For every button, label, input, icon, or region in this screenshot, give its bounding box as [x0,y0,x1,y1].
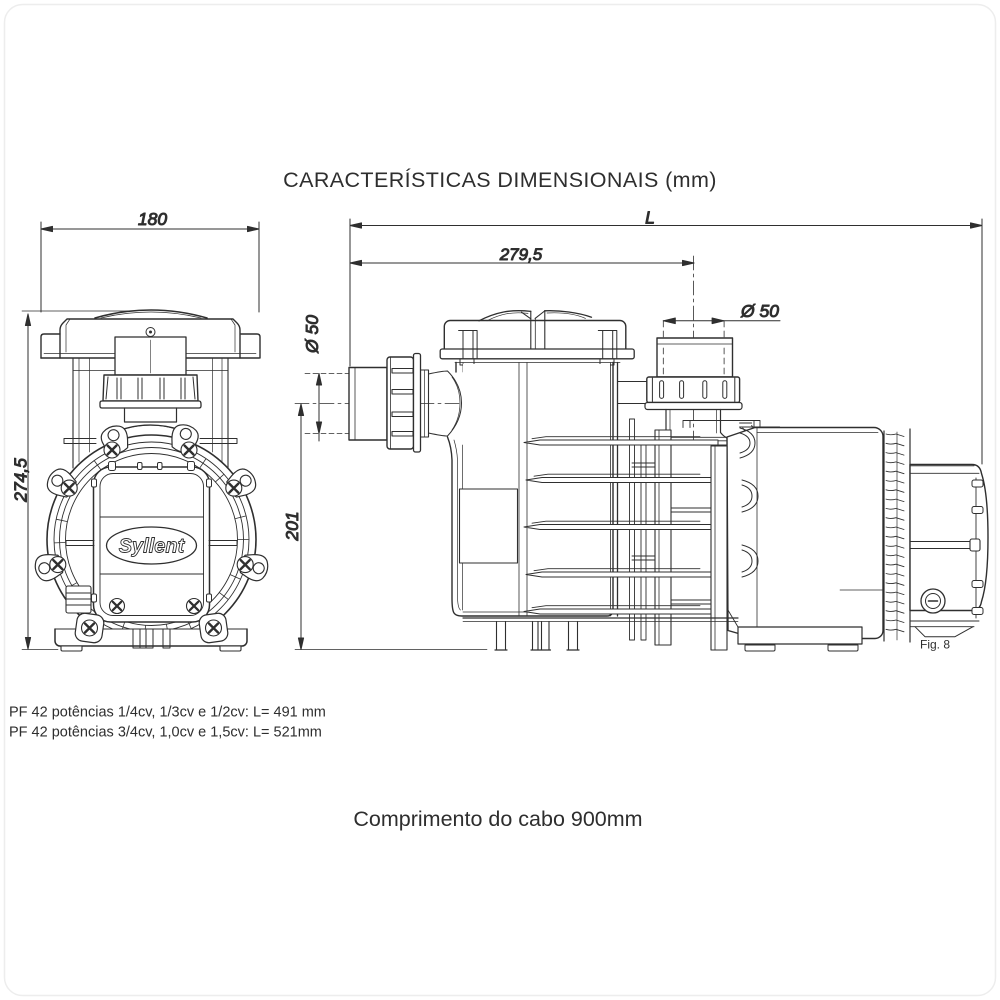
svg-text:Fig. 8: Fig. 8 [920,638,950,652]
svg-text:Syllent: Syllent [119,536,186,558]
svg-text:Comprimento do cabo 900mm: Comprimento do cabo 900mm [353,807,642,831]
svg-text:274,5: 274,5 [11,458,31,503]
svg-text:180: 180 [138,209,167,229]
svg-text:279,5: 279,5 [499,245,543,264]
svg-text:L: L [645,208,655,228]
svg-text:Ø 50: Ø 50 [302,315,322,354]
svg-text:201: 201 [282,511,302,541]
svg-text:PF 42 potências 1/4cv, 1/3cv e: PF 42 potências 1/4cv, 1/3cv e 1/2cv: L=… [9,705,326,721]
svg-text:PF 42 potências 3/4cv, 1,0cv e: PF 42 potências 3/4cv, 1,0cv e 1,5cv: L=… [9,725,322,741]
svg-text:CARACTERÍSTICAS DIMENSIONAIS (: CARACTERÍSTICAS DIMENSIONAIS (mm) [283,167,717,192]
svg-text:Ø 50: Ø 50 [740,301,779,321]
